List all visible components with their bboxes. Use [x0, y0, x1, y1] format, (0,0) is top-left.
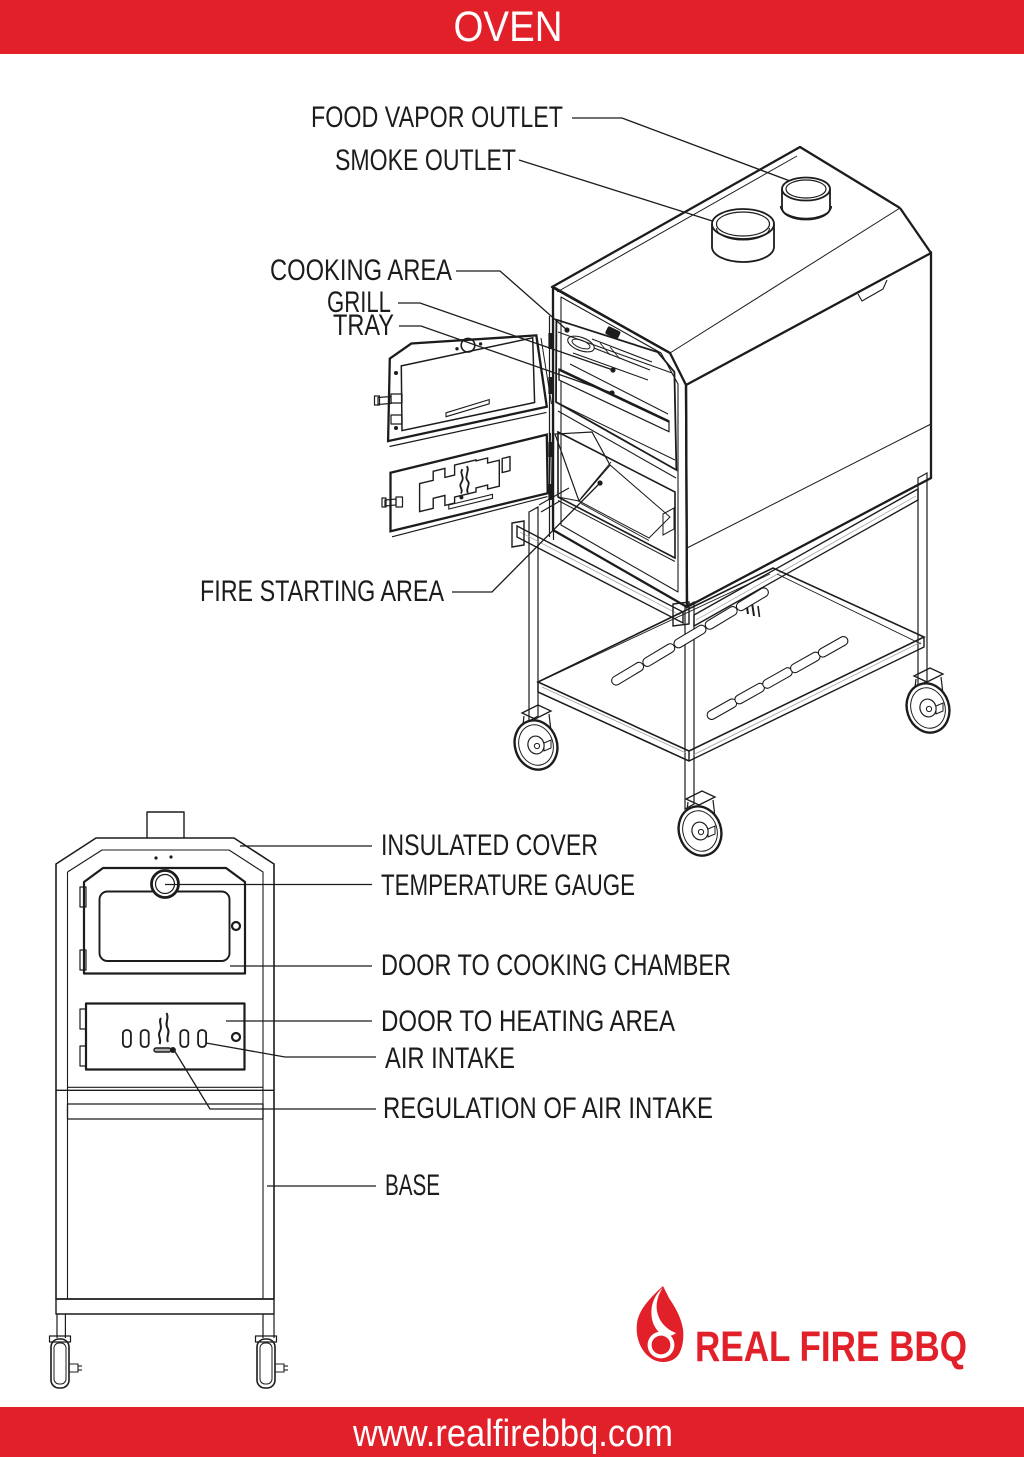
svg-text:www.realfirebbq.com: www.realfirebbq.com	[352, 1413, 673, 1455]
svg-text:INSULATED COVER: INSULATED COVER	[381, 829, 598, 862]
svg-text:REAL FIRE BBQ: REAL FIRE BBQ	[695, 1324, 967, 1371]
svg-text:OVEN: OVEN	[454, 3, 563, 51]
svg-text:FOOD VAPOR OUTLET: FOOD VAPOR OUTLET	[311, 101, 563, 134]
svg-text:AIR INTAKE: AIR INTAKE	[385, 1042, 515, 1075]
svg-text:FIRE STARTING AREA: FIRE STARTING AREA	[200, 575, 444, 608]
svg-text:TRAY: TRAY	[333, 309, 394, 342]
svg-text:DOOR TO HEATING AREA: DOOR TO HEATING AREA	[381, 1005, 675, 1038]
svg-text:REGULATION OF AIR INTAKE: REGULATION OF AIR INTAKE	[383, 1092, 713, 1125]
svg-text:BASE: BASE	[385, 1169, 440, 1202]
svg-text:COOKING AREA: COOKING AREA	[270, 254, 452, 287]
svg-text:TEMPERATURE GAUGE: TEMPERATURE GAUGE	[381, 869, 635, 902]
svg-text:SMOKE OUTLET: SMOKE OUTLET	[335, 144, 516, 177]
svg-text:DOOR TO COOKING CHAMBER: DOOR TO COOKING CHAMBER	[381, 949, 731, 982]
